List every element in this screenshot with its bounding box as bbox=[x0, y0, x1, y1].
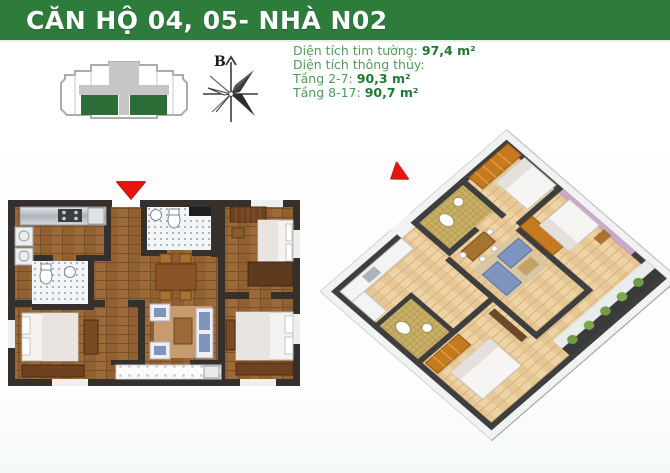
window-left bbox=[8, 320, 15, 348]
compass-rose: B bbox=[200, 50, 258, 128]
area-line-thong-thuy: Diện tích thông thủy: bbox=[293, 58, 476, 72]
compass-icon: B bbox=[200, 50, 258, 128]
tang-2-7-value: 90,3 m² bbox=[357, 71, 411, 86]
title-bar: CĂN HỘ 04, 05- NHÀ N02 bbox=[0, 0, 670, 42]
window-bottom-left bbox=[52, 379, 88, 386]
area-line-tang-8-17: Tầng 8-17:90,7 m² bbox=[293, 86, 476, 100]
floor-plan-2d bbox=[8, 200, 300, 386]
unit-05-highlight bbox=[130, 95, 167, 115]
page-background: CĂN HỘ 04, 05- NHÀ N02 Diện tích tim tườ… bbox=[0, 0, 670, 473]
tang-2-7-label: Tầng 2-7: bbox=[293, 71, 353, 86]
floor-plan-3d-rotated bbox=[319, 129, 670, 441]
window-right-1 bbox=[293, 230, 300, 258]
floor-plan-3d bbox=[326, 118, 670, 452]
bedroom-bottom-right bbox=[226, 312, 293, 375]
thong-thuy-label: Diện tích thông thủy: bbox=[293, 57, 425, 72]
wardrobe-mid-right bbox=[248, 262, 293, 286]
compass-north-label: B bbox=[214, 54, 226, 70]
tang-8-17-label: Tầng 8-17: bbox=[293, 85, 361, 100]
balcony-2d bbox=[116, 365, 221, 379]
bathroom-2 bbox=[32, 261, 88, 304]
page-title: CĂN HỘ 04, 05- NHÀ N02 bbox=[0, 6, 388, 35]
window-bottom-right bbox=[240, 379, 276, 386]
building-footprint bbox=[53, 57, 195, 123]
floor-plan-3d-drawing bbox=[319, 129, 670, 441]
tang-8-17-value: 90,7 m² bbox=[365, 85, 419, 100]
core-stem bbox=[109, 62, 139, 89]
window-right-2 bbox=[293, 314, 300, 344]
floor-plan-2d-drawing bbox=[8, 200, 300, 386]
bathroom-1 bbox=[147, 207, 211, 250]
window-top bbox=[251, 200, 283, 207]
entrance-opening bbox=[112, 200, 140, 207]
core-divider bbox=[119, 93, 129, 115]
unit-04-highlight bbox=[81, 95, 118, 115]
tim-tuong-label: Diện tích tim tường: bbox=[293, 43, 418, 58]
entrance-arrow-2d-icon bbox=[116, 181, 146, 199]
area-info: Diện tích tim tường:97,4 m² Diện tích th… bbox=[293, 44, 476, 100]
area-line-tim-tuong: Diện tích tim tường:97,4 m² bbox=[293, 44, 476, 58]
living-room bbox=[150, 304, 213, 359]
building-locator-diagram bbox=[53, 57, 195, 123]
tim-tuong-value: 97,4 m² bbox=[422, 43, 476, 58]
area-line-tang-2-7: Tầng 2-7:90,3 m² bbox=[293, 72, 476, 86]
